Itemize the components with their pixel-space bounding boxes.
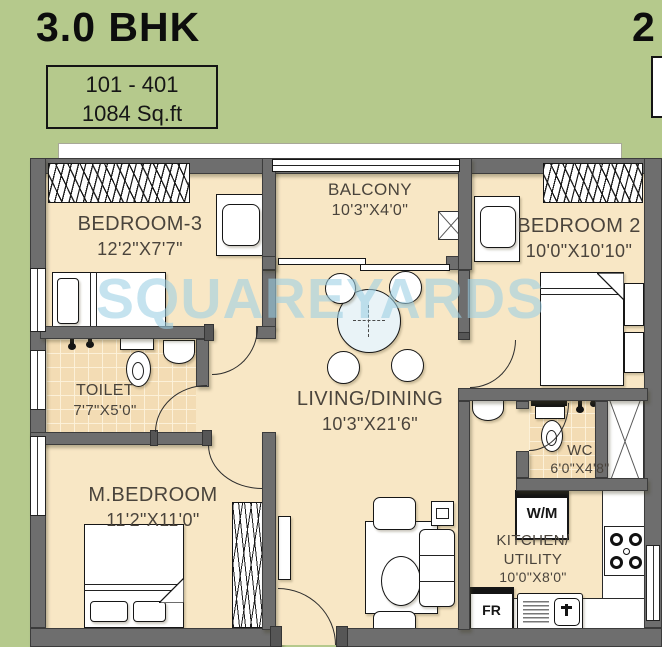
room-name: BEDROOM-3 [50, 212, 230, 238]
wall-wc-kitchen [516, 478, 648, 491]
washbasin-icon [163, 340, 195, 364]
sofa [419, 529, 455, 607]
wall-wc-left-stub [516, 401, 529, 409]
shower-icon [576, 406, 584, 413]
stove-burner [610, 556, 623, 569]
kitchen-window [646, 545, 660, 621]
unit-info-box: 101 - 401 1084 Sq.ft [46, 65, 218, 129]
washing-machine-label: W/M [515, 505, 569, 522]
wc-label: WC 6'0"X4'8" [540, 441, 620, 478]
mbedroom-bed-fold [159, 578, 184, 603]
kitchen-sink [517, 593, 583, 631]
bedroom2-label: BEDROOM 2 10'0"X10'10" [505, 214, 653, 263]
mbedroom-label: M.BEDROOM 11'2"X11'0" [72, 483, 234, 532]
room-name: M.BEDROOM [72, 483, 234, 509]
wall-outer-bottom [30, 628, 282, 647]
room-dims: 11'2"X11'0" [72, 509, 234, 532]
bedroom2-side-table [624, 332, 644, 373]
entrance-jamb [336, 626, 348, 647]
stove-knob [623, 548, 630, 555]
fridge-top-edge [471, 589, 512, 594]
wall-end-cap [458, 332, 470, 340]
dining-chair [327, 351, 360, 384]
coffee-table [381, 556, 421, 606]
tv-stand [431, 501, 454, 526]
toilet-ventilator [30, 350, 46, 410]
wall-wc-left [516, 451, 529, 478]
room-name: WC [540, 441, 620, 460]
wall-living-kitchen [458, 401, 470, 630]
balcony-slider-panel [278, 258, 366, 265]
living-label: LIVING/DINING 10'3"X21'6" [288, 387, 452, 436]
armchair [373, 497, 416, 530]
sink-faucet-icon [561, 606, 572, 609]
unit-area: 1084 Sq.ft [48, 99, 216, 128]
bedroom2-bed-fold [597, 273, 624, 300]
toilet-bowl-inner [132, 362, 144, 380]
wardrobe [232, 502, 264, 628]
bedroom2-side-table [624, 283, 644, 326]
wall-mbedroom-living [262, 432, 276, 630]
mbedroom-window [30, 436, 46, 516]
stove-burner [629, 556, 642, 569]
adjacent-unit-title-partial: 2 [632, 4, 656, 51]
room-dims: 10'0"X10'10" [505, 240, 653, 263]
toilet-label: TOILET 7'7"X5'0" [55, 381, 155, 421]
room-name: BALCONY [295, 179, 445, 201]
unit-range: 101 - 401 [48, 70, 216, 99]
mbedroom-pillow [133, 601, 166, 622]
wall-balcony-bedroom2 [458, 158, 472, 270]
washing-machine-top-edge [517, 492, 567, 498]
wall-toilet-right [196, 339, 209, 387]
adjacent-info-box-partial [651, 56, 662, 118]
bedroom3-pillow [57, 278, 79, 324]
mbedroom-pillow [90, 601, 128, 622]
balcony-label: BALCONY 10'3"X4'0" [295, 179, 445, 221]
bedroom2-window [543, 163, 643, 203]
wall-bedroom2-wc [458, 388, 648, 401]
door-jamb [202, 430, 212, 446]
shower-icon [68, 343, 76, 350]
left-wall-window [30, 268, 46, 332]
stove-burner [610, 533, 623, 546]
sofa-cushion-line [419, 581, 455, 582]
room-dims: 10'3"X21'6" [288, 413, 452, 436]
tv-screen [436, 508, 449, 519]
room-name: TOILET [55, 381, 155, 401]
wall-toilet-mbedroom [30, 432, 212, 445]
room-name: BEDROOM 2 [505, 214, 653, 240]
wall-bedroom3-balcony [262, 158, 276, 270]
room-dims: 10'3"X4'0" [295, 201, 445, 221]
shower-icon [86, 341, 94, 348]
sink-drainboard [523, 601, 549, 625]
room-dims: 6'0"X4'8" [540, 460, 620, 478]
fridge-label: FR [469, 602, 514, 618]
watermark: SQUAREYARDS [96, 266, 545, 332]
wall-outer-bottom [336, 628, 662, 647]
sofa-cushion-line [419, 555, 455, 556]
room-name: KITCHEN/ [472, 531, 594, 550]
bedroom3-bed-line [90, 272, 91, 330]
door-jamb [150, 430, 158, 446]
stove-burner [629, 533, 642, 546]
tv-panel [278, 516, 291, 580]
dining-chair [391, 349, 424, 382]
bedroom3-label: BEDROOM-3 12'2"X7'7" [50, 212, 230, 261]
bedroom3-window [48, 163, 190, 203]
room-dims: 10'0"X8'0" [472, 569, 594, 587]
floorplan-page: 3.0 BHK 2 101 - 401 1084 Sq.ft [0, 0, 662, 647]
room-name-line2: UTILITY [472, 550, 594, 569]
room-dims: 7'7"X5'0" [55, 401, 155, 420]
balcony-railing [272, 159, 460, 172]
kitchen-label: KITCHEN/ UTILITY 10'0"X8'0" [472, 531, 594, 587]
page-title: 3.0 BHK [36, 4, 200, 51]
room-name: LIVING/DINING [288, 387, 452, 413]
room-dims: 12'2"X7'7" [50, 238, 230, 261]
